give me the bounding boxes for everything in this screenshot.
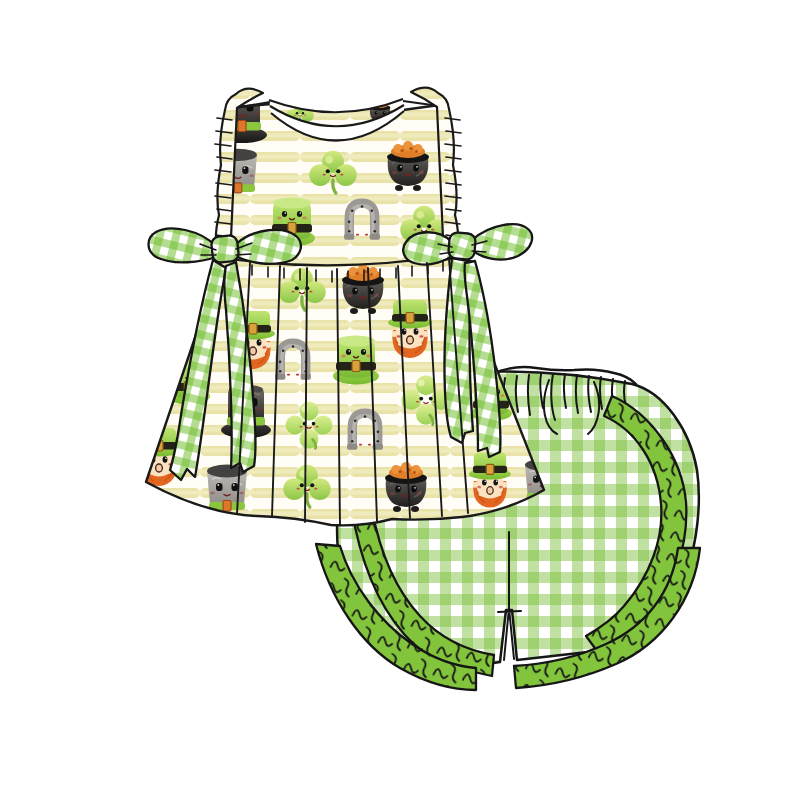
product-illustration-canvas (0, 0, 800, 800)
bow-knot (448, 232, 476, 260)
bow-loop (403, 232, 454, 264)
gray-top-hat-motif (207, 465, 247, 512)
outfit-illustration (0, 0, 800, 800)
